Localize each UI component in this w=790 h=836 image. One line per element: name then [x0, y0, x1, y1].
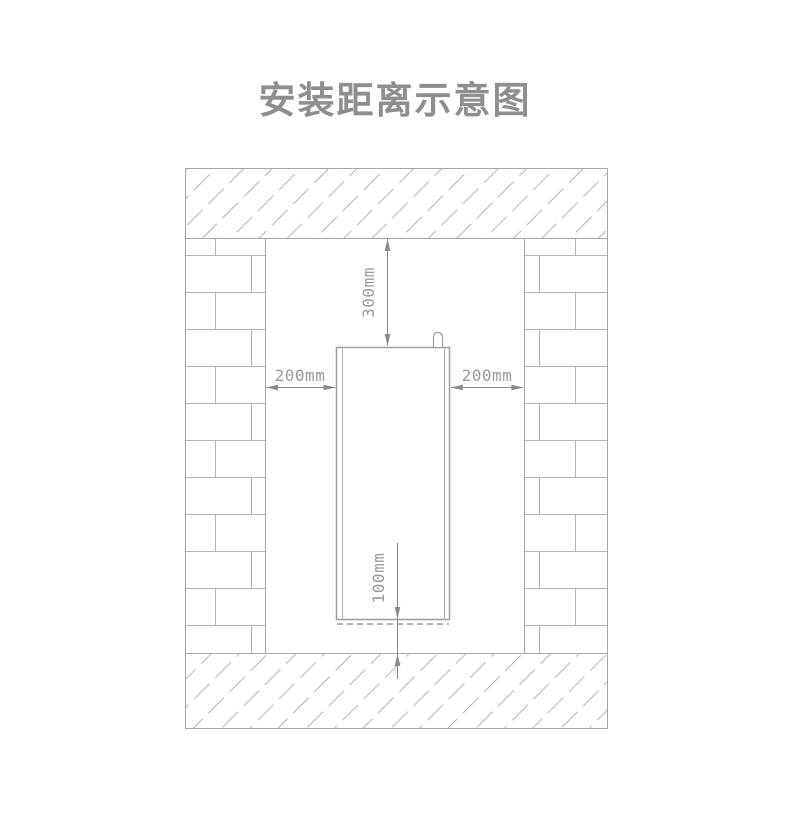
installation-diagram: 300mm 200mm 200mm 100mm: [0, 0, 790, 836]
page: 安装距离示意图: [0, 0, 790, 836]
dimension-left: 200mm: [266, 366, 336, 390]
dimension-right-label: 200mm: [462, 366, 513, 385]
appliance-pipe: [434, 333, 443, 348]
dimension-right: 200mm: [451, 366, 524, 390]
dimension-top-label: 300mm: [359, 267, 378, 318]
dimension-top: 300mm: [359, 239, 390, 346]
right-wall: [525, 239, 608, 654]
dimension-left-label: 200mm: [275, 366, 326, 385]
left-wall: [186, 239, 266, 654]
dimension-bottom-label: 100mm: [369, 553, 388, 604]
appliance: [337, 333, 450, 625]
ceiling-slab: [186, 169, 608, 239]
appliance-body: [337, 348, 450, 620]
